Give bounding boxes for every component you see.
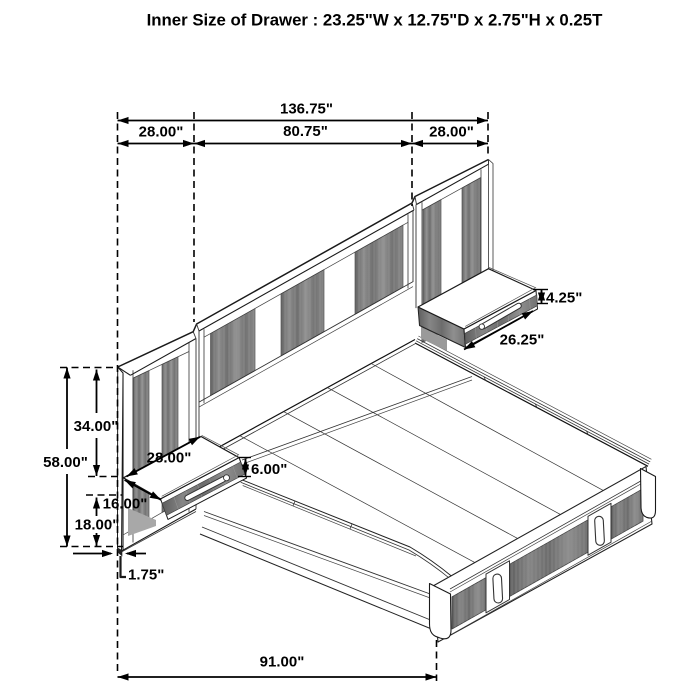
svg-text:80.75": 80.75" <box>283 123 328 140</box>
svg-text:1.75": 1.75" <box>128 567 164 584</box>
svg-text:58.00": 58.00" <box>43 454 88 471</box>
svg-text:28.00": 28.00" <box>147 450 192 467</box>
svg-text:91.00": 91.00" <box>260 654 305 671</box>
svg-text:Inner Size of Drawer : 23.25"W: Inner Size of Drawer : 23.25"W x 12.75"D… <box>147 11 603 30</box>
svg-text:28.00": 28.00" <box>139 124 184 141</box>
svg-text:4.25": 4.25" <box>546 290 582 307</box>
svg-text:6.00": 6.00" <box>251 461 287 478</box>
svg-text:28.00": 28.00" <box>429 124 474 141</box>
svg-text:18.00": 18.00" <box>75 517 120 534</box>
svg-text:26.25": 26.25" <box>500 332 545 349</box>
svg-text:34.00": 34.00" <box>74 418 119 435</box>
svg-text:16.00": 16.00" <box>103 496 148 513</box>
svg-text:136.75": 136.75" <box>280 101 333 118</box>
